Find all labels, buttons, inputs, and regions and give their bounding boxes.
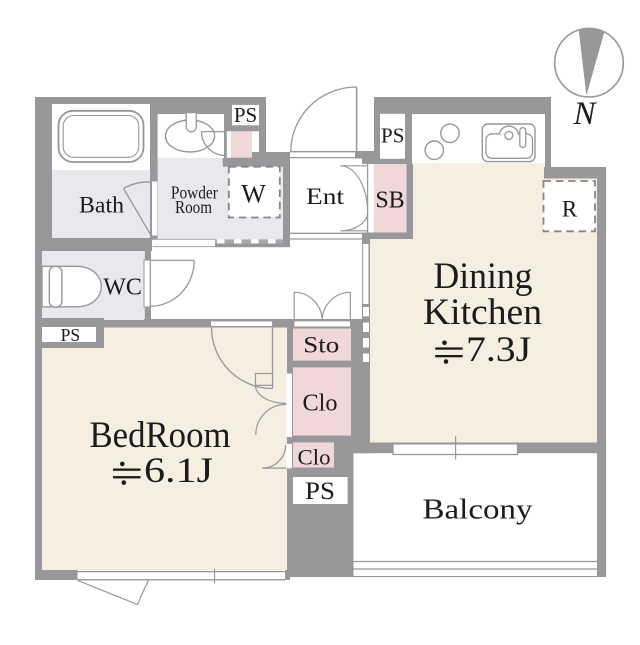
svg-text:Dining: Dining	[434, 255, 533, 296]
svg-text:W: W	[241, 180, 266, 209]
svg-text:Sto: Sto	[303, 333, 339, 358]
svg-text:SB: SB	[375, 188, 404, 214]
svg-text:Bath: Bath	[79, 193, 124, 219]
svg-text:6.1J: 6.1J	[144, 450, 213, 490]
svg-text:Balcony: Balcony	[423, 495, 533, 526]
svg-text:WC: WC	[103, 274, 142, 300]
svg-text:7.3J: 7.3J	[466, 329, 531, 369]
svg-text:N: N	[572, 96, 597, 132]
svg-text:Clo: Clo	[298, 445, 331, 470]
svg-text:PS: PS	[381, 124, 404, 148]
svg-text:BedRoom: BedRoom	[90, 414, 231, 455]
svg-text:PS: PS	[61, 325, 80, 345]
svg-text:Clo: Clo	[303, 391, 338, 417]
svg-text:PS: PS	[305, 478, 335, 505]
svg-text:R: R	[562, 197, 578, 222]
svg-text:Ent: Ent	[306, 184, 345, 209]
svg-text:PS: PS	[234, 103, 257, 127]
svg-text:Room: Room	[175, 197, 212, 217]
svg-text:Kitchen: Kitchen	[423, 291, 542, 332]
